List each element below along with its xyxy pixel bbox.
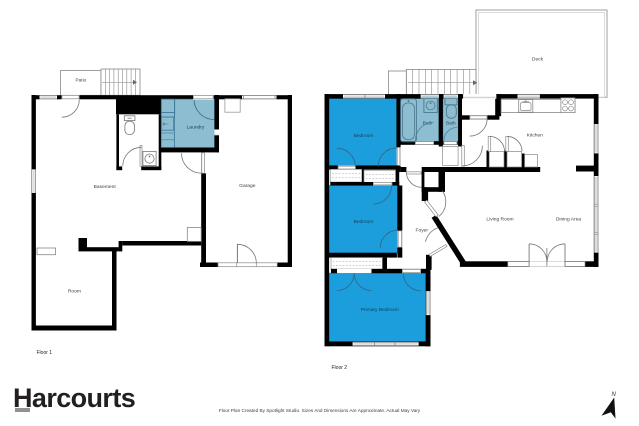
svg-text:Deck: Deck <box>532 56 544 62</box>
svg-text:Basement: Basement <box>94 184 117 190</box>
svg-text:Bath: Bath <box>446 120 456 125</box>
svg-text:Laundry: Laundry <box>187 124 205 130</box>
svg-text:Primary Bedroom: Primary Bedroom <box>361 307 399 313</box>
svg-text:Bedroom: Bedroom <box>354 219 374 225</box>
svg-text:Room: Room <box>68 289 81 295</box>
svg-text:Kitchen: Kitchen <box>527 132 544 138</box>
svg-text:Dining Area: Dining Area <box>556 217 582 223</box>
svg-text:Foyer: Foyer <box>416 228 429 234</box>
svg-text:Living Room: Living Room <box>486 217 513 223</box>
svg-text:Garage: Garage <box>239 183 256 189</box>
svg-text:Floor 2: Floor 2 <box>332 365 348 371</box>
svg-text:N: N <box>612 392 617 398</box>
svg-text:Floor 1: Floor 1 <box>37 350 53 356</box>
svg-text:Bedroom: Bedroom <box>354 133 374 139</box>
svg-text:Patio: Patio <box>76 77 87 82</box>
